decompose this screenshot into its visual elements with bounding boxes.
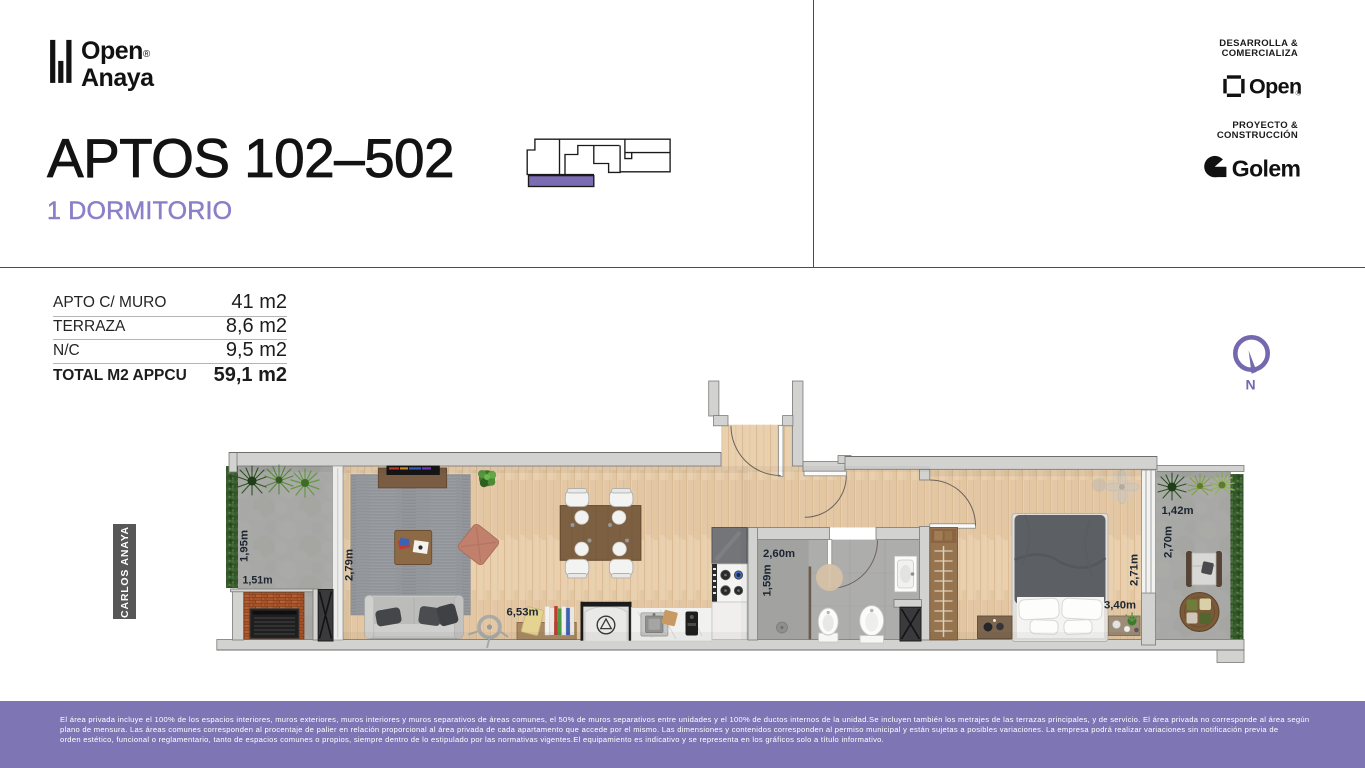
svg-text:3,40m: 3,40m bbox=[1104, 600, 1136, 612]
svg-text:6,53m: 6,53m bbox=[507, 607, 539, 619]
svg-text:2,79m: 2,79m bbox=[344, 549, 356, 581]
svg-text:2,60m: 2,60m bbox=[763, 548, 795, 560]
svg-text:Golem: Golem bbox=[1232, 156, 1301, 182]
svg-text:2,71m: 2,71m bbox=[1129, 554, 1141, 586]
svg-text:1,42m: 1,42m bbox=[1162, 505, 1194, 517]
svg-text:2,70m: 2,70m bbox=[1163, 526, 1175, 558]
svg-text:1,51m: 1,51m bbox=[243, 575, 273, 587]
svg-text:1,95m: 1,95m bbox=[239, 530, 251, 562]
svg-text:1,59m: 1,59m bbox=[762, 564, 774, 596]
svg-text:Open: Open bbox=[1249, 75, 1302, 99]
svg-text:®: ® bbox=[1296, 89, 1302, 98]
